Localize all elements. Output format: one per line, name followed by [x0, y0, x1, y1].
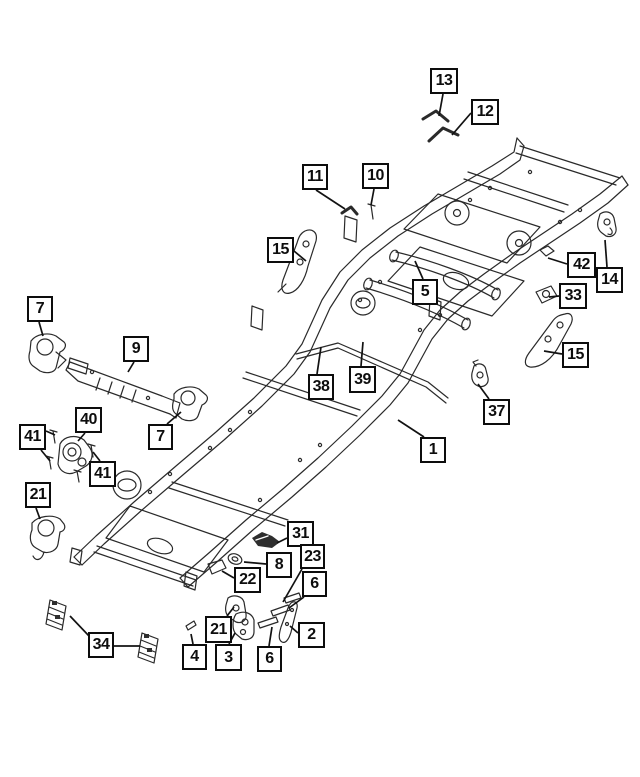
callout-box-14[interactable]: 14 [596, 267, 623, 293]
callout-box-37[interactable]: 37 [483, 399, 510, 425]
callout-number: 37 [488, 404, 505, 420]
callout-number: 34 [93, 637, 110, 653]
callout-number: 21 [30, 487, 47, 503]
callout-box-6[interactable]: 6 [257, 646, 282, 672]
callout-box-13[interactable]: 13 [430, 68, 458, 94]
callout-number: 40 [80, 412, 97, 428]
callout-box-21[interactable]: 21 [205, 616, 232, 643]
callout-number: 6 [310, 576, 318, 592]
callout-number: 1 [429, 442, 437, 458]
callout-box-5[interactable]: 5 [412, 279, 438, 305]
callout-number: 9 [132, 341, 140, 357]
callout-number: 41 [24, 429, 41, 445]
callout-number: 23 [304, 549, 321, 565]
callout-box-7[interactable]: 7 [148, 424, 173, 450]
callout-box-8[interactable]: 8 [266, 552, 292, 578]
callout-number: 12 [477, 104, 494, 120]
callout-number: 5 [421, 284, 429, 300]
callout-box-15[interactable]: 15 [562, 342, 589, 368]
callout-box-38[interactable]: 38 [308, 374, 334, 400]
callout-number: 2 [307, 627, 315, 643]
callout-box-42[interactable]: 42 [567, 252, 596, 278]
callout-box-4[interactable]: 4 [182, 644, 207, 670]
callout-number: 31 [292, 526, 309, 542]
callout-box-23[interactable]: 23 [300, 544, 325, 569]
callout-number: 7 [36, 301, 44, 317]
callout-box-41[interactable]: 41 [19, 424, 46, 450]
parts-diagram-stage: 1312111015542143315371793839404141721312… [0, 0, 640, 777]
callout-number: 6 [265, 651, 273, 667]
callout-number: 22 [239, 572, 256, 588]
callout-number: 10 [367, 168, 384, 184]
callout-number: 42 [573, 257, 590, 273]
callout-box-33[interactable]: 33 [559, 283, 587, 309]
callout-box-10[interactable]: 10 [362, 163, 389, 189]
callout-box-21[interactable]: 21 [25, 482, 51, 508]
callout-box-2[interactable]: 2 [298, 622, 325, 648]
callout-box-11[interactable]: 11 [302, 164, 328, 190]
callout-number: 3 [224, 650, 232, 666]
callout-number: 4 [190, 649, 198, 665]
callout-box-34[interactable]: 34 [88, 632, 114, 658]
callout-box-40[interactable]: 40 [75, 407, 102, 433]
callout-number: 8 [275, 557, 283, 573]
callout-box-41[interactable]: 41 [89, 461, 116, 487]
callout-box-7[interactable]: 7 [27, 296, 53, 322]
callout-number: 39 [354, 372, 371, 388]
callout-box-22[interactable]: 22 [234, 567, 261, 593]
callout-number: 38 [313, 379, 330, 395]
callout-number: 33 [565, 288, 582, 304]
callout-number: 15 [272, 242, 289, 258]
callout-box-1[interactable]: 1 [420, 437, 446, 463]
callout-box-12[interactable]: 12 [471, 99, 499, 125]
callout-number: 41 [94, 466, 111, 482]
callout-number: 21 [210, 622, 227, 638]
callout-number: 13 [436, 73, 453, 89]
callout-number: 14 [601, 272, 618, 288]
callout-box-15[interactable]: 15 [267, 237, 294, 263]
callout-number: 11 [307, 169, 323, 185]
callout-box-9[interactable]: 9 [123, 336, 149, 362]
callout-box-3[interactable]: 3 [215, 644, 242, 671]
callout-box-6[interactable]: 6 [302, 571, 327, 597]
callout-layer: 1312111015542143315371793839404141721312… [0, 0, 640, 777]
callout-box-39[interactable]: 39 [349, 366, 376, 393]
callout-number: 7 [156, 429, 164, 445]
callout-number: 15 [567, 347, 584, 363]
